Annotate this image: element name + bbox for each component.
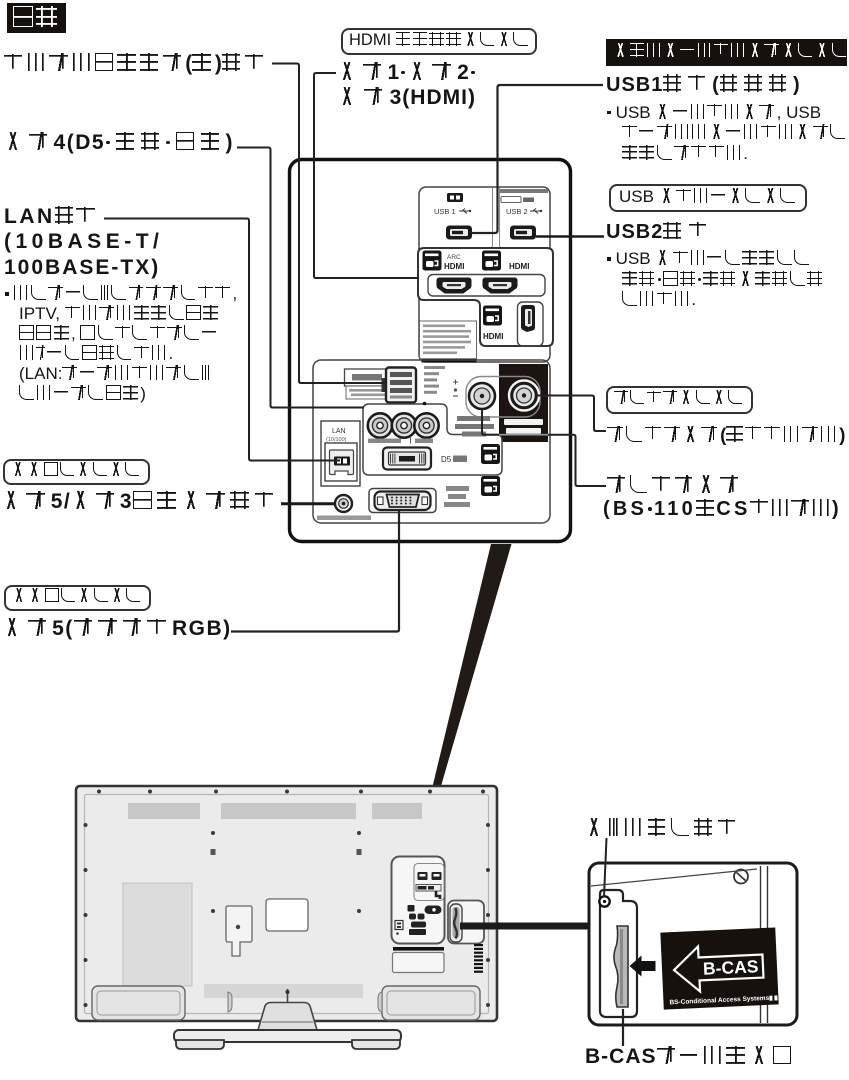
svg-text:B-CAS: B-CAS: [703, 956, 759, 978]
svg-text:HDMI: HDMI: [509, 262, 529, 271]
svg-text:USB 2: USB 2: [506, 207, 528, 216]
svg-text:ARC: ARC: [447, 254, 461, 261]
svg-text:HDMI: HDMI: [444, 262, 464, 271]
svg-text:(10/100): (10/100): [326, 437, 347, 443]
svg-text:D5: D5: [441, 455, 452, 464]
svg-text:LAN: LAN: [332, 428, 346, 435]
svg-text:HDMI: HDMI: [483, 332, 503, 341]
svg-text:USB 1: USB 1: [434, 207, 456, 216]
